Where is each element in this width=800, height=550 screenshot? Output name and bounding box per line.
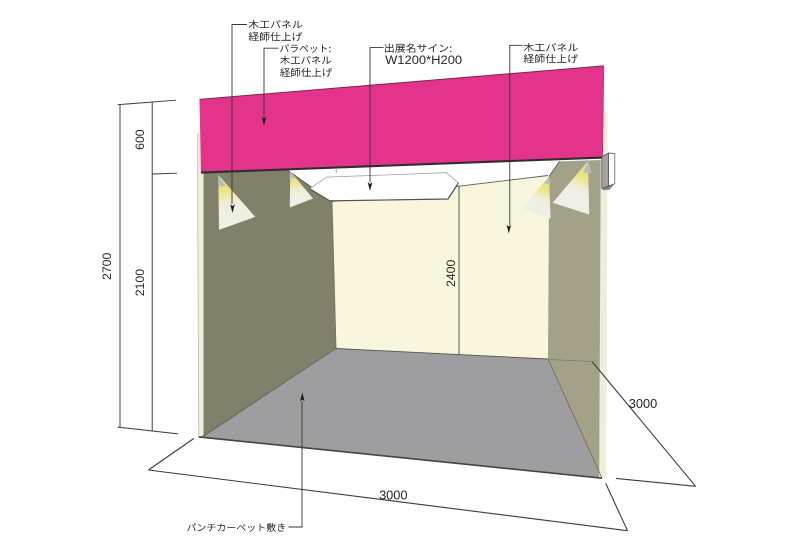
svg-text:3000: 3000 [379,487,407,502]
svg-text:600: 600 [133,129,147,150]
svg-text:2700: 2700 [100,252,114,280]
svg-text:W1200*H200: W1200*H200 [385,53,462,67]
svg-text:2400: 2400 [444,259,458,287]
svg-text:2100: 2100 [133,269,147,297]
svg-text:3000: 3000 [629,396,657,411]
